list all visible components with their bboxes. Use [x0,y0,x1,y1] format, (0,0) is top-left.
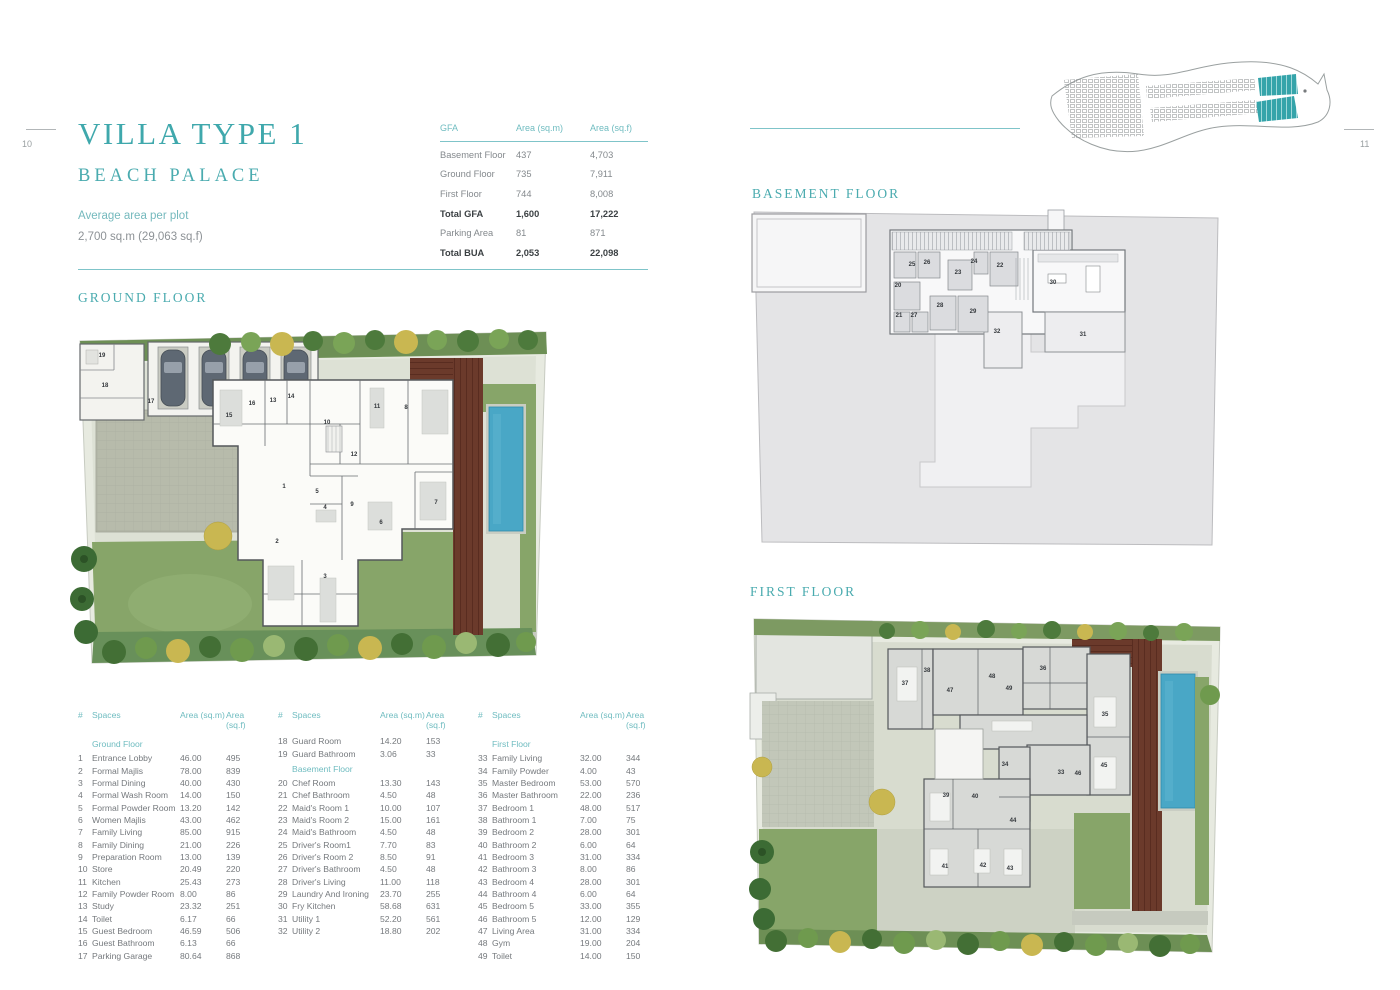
gfa-col-sqf: Area (sq.f) [590,123,648,133]
space-row: 26Driver's Room 28.5091 [278,851,460,863]
gfa-col-sqm: Area (sq.m) [516,123,590,133]
space-row: 31Utility 152.20561 [278,912,460,924]
space-row: 20Chef Room13.30143 [278,777,460,789]
gfa-row: Parking Area81871 [440,223,648,243]
room-number: 34 [1002,762,1009,768]
room-number: 24 [971,259,978,265]
space-row: 40Bathroom 26.0064 [478,838,660,850]
room-number: 2 [275,539,278,545]
room-number: 9 [350,502,353,508]
space-row: 18Guard Room14.20153 [278,735,460,747]
room-number: 14 [288,394,295,400]
space-row: 46Bathroom 512.00129 [478,912,660,924]
room-number: 25 [909,262,916,268]
room-number: 21 [896,313,903,319]
avg-area-label: Average area per plot [78,210,307,222]
right-page-number: 11 [1360,139,1369,149]
spaces-table-basement: # Spaces Area (sq.m) Area (sq.f) 18Guard… [278,710,460,937]
room-number: 30 [1050,280,1057,286]
gfa-row: Total GFA1,60017,222 [440,204,648,224]
room-number: 23 [955,270,962,276]
space-row: 3Formal Dining40.00430 [78,777,260,789]
space-row: 32Utility 218.80202 [278,925,460,937]
room-number: 45 [1101,763,1108,769]
title-divider [78,269,648,270]
basement-floor-plan: 20212223242526272829303132 [748,204,1226,566]
left-page-number: 10 [22,139,32,149]
room-number: 32 [994,329,1001,335]
gfa-table: GFA Area (sq.m) Area (sq.f) Basement Flo… [440,123,648,263]
space-row: 7Family Living85.00915 [78,826,260,838]
room-number: 37 [902,681,909,687]
room-number: 12 [351,452,358,458]
space-row: 30Fry Kitchen58.68631 [278,900,460,912]
space-row: 12Family Powder Room8.0086 [78,888,260,900]
spaces-table-header: # Spaces Area (sq.m) Area (sq.f) [278,710,460,730]
room-number: 26 [924,260,931,266]
space-row: 14Toilet6.1766 [78,912,260,924]
room-number: 11 [374,404,380,410]
col-spaces: Spaces [92,710,180,730]
space-row: 15Guest Bedroom46.59506 [78,925,260,937]
room-number: 18 [102,383,109,389]
ground-floor-heading: GROUND FLOOR [78,290,207,306]
space-row: 24Maid's Bathroom4.5048 [278,826,460,838]
col-spaces: Spaces [292,710,380,730]
col-sqf: Area (sq.f) [226,710,260,730]
room-number: 40 [972,794,979,800]
space-row: 17Parking Garage80.64868 [78,950,260,962]
space-row: 28Driver's Living11.00118 [278,875,460,887]
col-num: # [278,710,292,730]
col-sqm: Area (sq.m) [180,710,226,730]
room-number: 13 [270,398,277,404]
space-row: 39Bedroom 228.00301 [478,826,660,838]
room-number: 5 [315,489,318,495]
space-row: 34Family Powder4.0043 [478,764,660,776]
left-page-rule [26,129,56,130]
space-row: 47Living Area31.00334 [478,925,660,937]
space-row: 45Bedroom 533.00355 [478,900,660,912]
col-num: # [478,710,492,730]
ground-floor-plan: 12345678910111213141516171819 [70,314,566,703]
space-row: 8Family Dining21.00226 [78,838,260,850]
space-row: 10Store20.49220 [78,863,260,875]
right-page-divider [750,128,1020,129]
room-number: 6 [379,520,382,526]
room-number: 49 [1006,686,1013,692]
space-row: 29Laundry And Ironing23.70255 [278,888,460,900]
col-sqm: Area (sq.m) [580,710,626,730]
title-block: VILLA TYPE 1 BEACH PALACE Average area p… [78,118,307,243]
room-number: 46 [1075,771,1082,777]
col-sqm: Area (sq.m) [380,710,426,730]
gfa-table-header: GFA Area (sq.m) Area (sq.f) [440,123,648,142]
room-number: 16 [249,401,256,407]
spaces-table-header: # Spaces Area (sq.m) Area (sq.f) [78,710,260,730]
page-subtitle: BEACH PALACE [78,166,307,187]
space-row: 22Maid's Room 110.00107 [278,801,460,813]
room-number: 20 [895,283,902,289]
room-number: 47 [947,688,954,694]
space-row: 13Study23.32251 [78,900,260,912]
space-row: 21Chef Bathroom4.5048 [278,789,460,801]
space-row: 19Guard Bathroom3.0633 [278,747,460,759]
room-number: 35 [1102,712,1109,718]
room-number: 27 [911,313,918,319]
col-spaces: Spaces [492,710,580,730]
space-row: 4Formal Wash Room14.00150 [78,789,260,801]
space-row: 37Bedroom 148.00517 [478,801,660,813]
room-number: 15 [226,413,233,419]
brochure-page: { "page": { "left_page_number": "10", "r… [0,0,1400,990]
room-number: 39 [943,793,950,799]
room-number: 38 [924,668,931,674]
room-number: 41 [942,864,949,870]
space-row: 23Maid's Room 215.00161 [278,814,460,826]
space-row: 9Preparation Room13.00139 [78,851,260,863]
room-number: 36 [1040,666,1047,672]
space-row: 36Master Bathroom22.00236 [478,789,660,801]
space-row: 44Bathroom 46.0064 [478,888,660,900]
floor-section-label: Basement Floor [278,760,460,777]
room-number: 43 [1007,866,1014,872]
room-number: 29 [970,309,977,315]
gfa-row: Basement Floor4374,703 [440,145,648,165]
gfa-row: First Floor7448,008 [440,184,648,204]
room-number: 10 [324,420,331,426]
space-row: 41Bedroom 331.00334 [478,851,660,863]
col-sqf: Area (sq.f) [626,710,660,730]
room-number: 1 [282,484,285,490]
page-title: VILLA TYPE 1 [78,118,307,149]
gfa-col-label: GFA [440,123,516,133]
room-number: 19 [99,353,106,359]
col-sqf: Area (sq.f) [426,710,460,730]
space-row: 11Kitchen25.43273 [78,875,260,887]
room-number: 44 [1010,818,1017,824]
masterplan-key-map [1046,34,1334,172]
room-number: 28 [937,303,944,309]
space-row: 16Guest Bathroom6.1366 [78,937,260,949]
spaces-table-first: # Spaces Area (sq.m) Area (sq.f) First F… [478,710,660,962]
room-number: 42 [980,863,987,869]
gfa-row: Ground Floor7357,911 [440,165,648,185]
spaces-table-ground: # Spaces Area (sq.m) Area (sq.f) Ground … [78,710,260,962]
space-row: 35Master Bedroom53.00570 [478,777,660,789]
space-row: 2Formal Majlis78.00839 [78,764,260,776]
floor-section-label: Ground Floor [78,735,260,752]
gfa-row: Total BUA2,05322,098 [440,243,648,263]
space-row: 1Entrance Lobby46.00495 [78,752,260,764]
space-row: 42Bathroom 38.0086 [478,863,660,875]
space-row: 27Driver's Bathroom4.5048 [278,863,460,875]
room-number: 3 [323,574,326,580]
room-number: 22 [997,263,1004,269]
space-row: 5Formal Powder Room13.20142 [78,801,260,813]
floor-section-label: First Floor [478,735,660,752]
plot-area-value: 2,700 sq.m (29,063 sq.f) [78,231,307,243]
space-row: 25Driver's Room17.7083 [278,838,460,850]
right-page-rule [1344,129,1374,130]
room-number: 48 [989,674,996,680]
space-row: 6Women Majlis43.00462 [78,814,260,826]
room-number: 4 [323,505,326,511]
basement-floor-heading: BASEMENT FLOOR [752,186,900,202]
spaces-table-header: # Spaces Area (sq.m) Area (sq.f) [478,710,660,730]
room-number: 7 [434,500,437,506]
space-row: 49Toilet14.00150 [478,950,660,962]
room-number: 33 [1058,770,1065,776]
first-floor-plan: 3334353637383940414243444546474849 [742,597,1234,979]
gfa-table-rows: Basement Floor4374,703Ground Floor7357,9… [440,145,648,263]
space-row: 48Gym19.00204 [478,937,660,949]
space-row: 33Family Living32.00344 [478,752,660,764]
room-number: 31 [1080,332,1087,338]
room-number: 8 [404,405,407,411]
col-num: # [78,710,92,730]
space-row: 38Bathroom 17.0075 [478,814,660,826]
room-number: 17 [148,399,155,405]
space-row: 43Bedroom 428.00301 [478,875,660,887]
